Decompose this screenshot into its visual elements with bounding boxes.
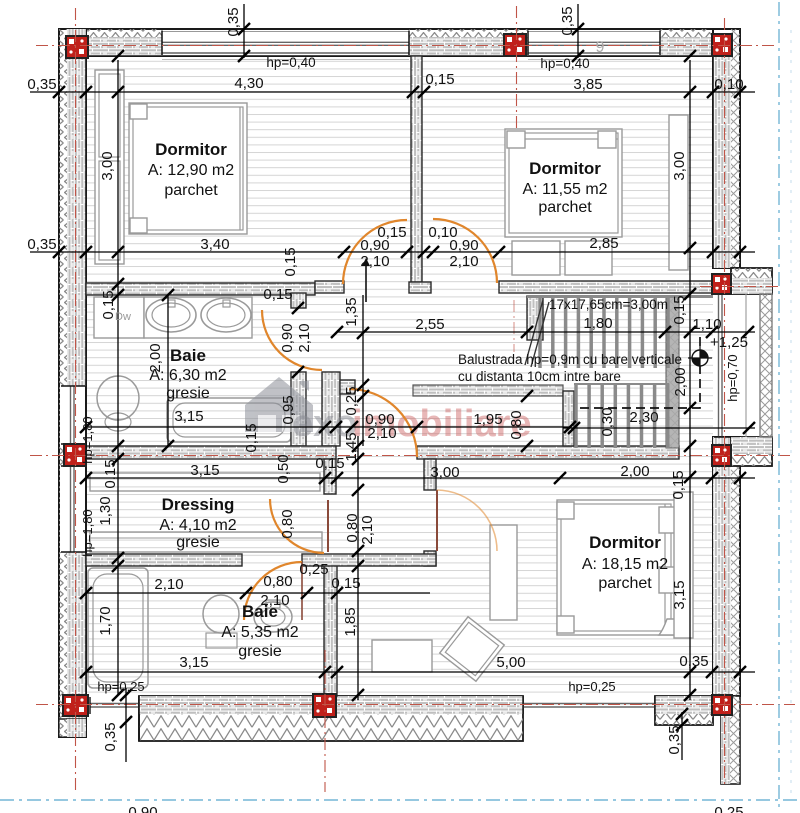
svg-text:gresie: gresie	[176, 534, 220, 551]
svg-text:0,30: 0,30	[599, 407, 616, 436]
svg-text:0,15: 0,15	[243, 423, 260, 452]
svg-text:3,15: 3,15	[179, 654, 208, 671]
svg-text:2,00: 2,00	[620, 463, 649, 480]
svg-text:0,25: 0,25	[714, 804, 743, 813]
svg-text:1,95: 1,95	[473, 411, 502, 428]
svg-text:1,35: 1,35	[343, 297, 360, 326]
svg-text:1,80: 1,80	[583, 315, 612, 332]
svg-text:4,30: 4,30	[234, 75, 263, 92]
svg-text:0,35: 0,35	[666, 725, 683, 754]
svg-text:0,10: 0,10	[714, 76, 743, 93]
svg-text:5,00: 5,00	[496, 654, 525, 671]
svg-text:hp=1,80: hp=1,80	[80, 509, 95, 556]
svg-text:0,15: 0,15	[377, 224, 406, 241]
svg-text:gresie: gresie	[166, 385, 210, 402]
svg-text:0,15: 0,15	[282, 247, 299, 276]
svg-text:gresie: gresie	[238, 643, 282, 660]
svg-text:0,80: 0,80	[508, 410, 525, 439]
svg-text:Balustrada hp=0,9m cu bare ver: Balustrada hp=0,9m cu bare verticale	[458, 352, 682, 367]
svg-text:parchet: parchet	[538, 199, 592, 216]
svg-text:0,90: 0,90	[128, 804, 157, 813]
svg-text:0,25: 0,25	[343, 386, 360, 415]
svg-text:A: 4,10 m2: A: 4,10 m2	[159, 517, 236, 534]
svg-text:3,00: 3,00	[430, 464, 459, 481]
svg-text:3,15: 3,15	[190, 462, 219, 479]
svg-text:0,35: 0,35	[225, 7, 242, 36]
svg-text:hp=0,40: hp=0,40	[540, 56, 589, 71]
svg-text:cu distanta 10cm intre bare: cu distanta 10cm intre bare	[458, 369, 621, 384]
svg-text:3,85: 3,85	[573, 76, 602, 93]
svg-text:0,35: 0,35	[27, 76, 56, 93]
svg-text:0,15: 0,15	[331, 575, 360, 592]
svg-text:1,45: 1,45	[343, 432, 360, 461]
svg-text:0,80: 0,80	[279, 509, 296, 538]
svg-text:0,50: 0,50	[275, 454, 292, 483]
svg-text:parchet: parchet	[164, 182, 218, 199]
svg-text:2,10: 2,10	[449, 253, 478, 270]
svg-text:0,10: 0,10	[428, 224, 457, 241]
svg-text:A: 11,55 m2: A: 11,55 m2	[522, 181, 607, 198]
svg-text:hp=1,80: hp=1,80	[80, 416, 95, 463]
svg-text:A: 12,90 m2: A: 12,90 m2	[148, 162, 234, 179]
svg-text:2,30: 2,30	[629, 409, 658, 426]
svg-text:hp=0,25: hp=0,25	[568, 679, 615, 694]
svg-text:A: 5,35 m2: A: 5,35 m2	[221, 624, 298, 641]
svg-text:2,10: 2,10	[367, 425, 396, 442]
svg-text:hp=0,70: hp=0,70	[725, 354, 740, 401]
svg-text:1,10: 1,10	[692, 316, 721, 333]
svg-text:A: 6,30 m2: A: 6,30 m2	[149, 367, 226, 384]
svg-text:Baie: Baie	[242, 602, 278, 621]
svg-text:Dormitor: Dormitor	[155, 140, 227, 159]
svg-text:+1,25: +1,25	[710, 334, 748, 351]
svg-text:9: 9	[596, 39, 605, 56]
svg-text:0,35: 0,35	[27, 236, 56, 253]
svg-text:0,15: 0,15	[102, 459, 119, 488]
svg-text:Dressing: Dressing	[162, 495, 235, 514]
svg-text:Dw: Dw	[115, 311, 131, 323]
svg-text:hp=0,25: hp=0,25	[97, 679, 144, 694]
svg-text:2,10: 2,10	[359, 515, 376, 544]
svg-text:Dormitor: Dormitor	[529, 159, 601, 178]
svg-text:2,00: 2,00	[672, 367, 689, 396]
svg-text:2,10: 2,10	[296, 323, 313, 352]
svg-text:3,15: 3,15	[174, 408, 203, 425]
svg-text:0,15: 0,15	[315, 455, 344, 472]
svg-text:A: 18,15 m2: A: 18,15 m2	[582, 556, 668, 573]
svg-text:1,70: 1,70	[97, 606, 114, 635]
svg-text:2,85: 2,85	[589, 235, 618, 252]
svg-text:Baie: Baie	[170, 346, 206, 365]
svg-text:0,80: 0,80	[263, 573, 292, 590]
svg-text:1,30: 1,30	[97, 496, 114, 525]
svg-text:3,00: 3,00	[99, 151, 116, 180]
svg-text:2,10: 2,10	[154, 576, 183, 593]
svg-text:0,15: 0,15	[671, 295, 688, 324]
svg-text:0,35: 0,35	[559, 6, 576, 35]
svg-text:0,90: 0,90	[279, 323, 296, 352]
svg-text:hp=0,40: hp=0,40	[266, 55, 315, 70]
svg-text:3,40: 3,40	[200, 236, 229, 253]
svg-text:0,15: 0,15	[670, 470, 687, 499]
svg-text:2,55: 2,55	[415, 316, 444, 333]
svg-text:0,25: 0,25	[299, 561, 328, 578]
svg-text:17x17,65cm=3,00m: 17x17,65cm=3,00m	[549, 297, 668, 312]
svg-text:0,15: 0,15	[425, 71, 454, 88]
svg-text:1,85: 1,85	[342, 607, 359, 636]
svg-text:0,95: 0,95	[280, 395, 297, 424]
svg-text:3,15: 3,15	[671, 580, 688, 609]
svg-text:parchet: parchet	[598, 575, 652, 592]
svg-text:3,00: 3,00	[671, 151, 688, 180]
svg-text:Dormitor: Dormitor	[589, 533, 661, 552]
svg-text:0,15: 0,15	[263, 286, 292, 303]
svg-text:0,35: 0,35	[102, 722, 119, 751]
